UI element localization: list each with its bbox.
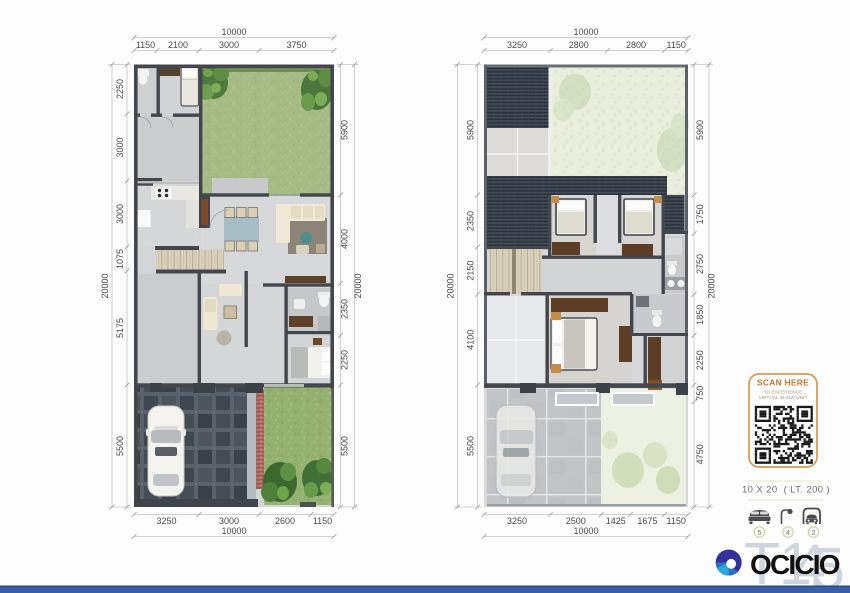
- svg-text:1150: 1150: [667, 40, 686, 50]
- svg-text:3000: 3000: [219, 40, 239, 50]
- svg-text:1850: 1850: [695, 305, 705, 325]
- svg-text:2250: 2250: [340, 350, 350, 370]
- svg-text:20000: 20000: [707, 273, 717, 298]
- svg-text:20000: 20000: [446, 273, 456, 298]
- svg-text:10000: 10000: [221, 27, 246, 37]
- svg-text:OCICIO: OCICIO: [750, 549, 840, 580]
- svg-text:2800: 2800: [569, 40, 589, 50]
- svg-text:2500: 2500: [566, 516, 586, 526]
- svg-text:3250: 3250: [507, 40, 527, 50]
- svg-text:3000: 3000: [115, 137, 125, 157]
- svg-text:3250: 3250: [156, 516, 176, 526]
- svg-text:2350: 2350: [340, 299, 350, 319]
- svg-text:10000: 10000: [573, 27, 598, 37]
- svg-text:4100: 4100: [466, 330, 476, 350]
- svg-text:2600: 2600: [275, 516, 295, 526]
- svg-text:1425: 1425: [606, 516, 626, 526]
- svg-text:2800: 2800: [626, 40, 646, 50]
- svg-text:1750: 1750: [695, 204, 705, 224]
- svg-text:10000: 10000: [573, 526, 598, 536]
- svg-text:5900: 5900: [466, 120, 476, 140]
- svg-text:5900: 5900: [340, 120, 350, 140]
- svg-text:SCAN HERE: SCAN HERE: [757, 378, 809, 388]
- svg-text:1675: 1675: [637, 516, 657, 526]
- svg-text:1150: 1150: [313, 516, 332, 526]
- svg-text:5500: 5500: [340, 436, 350, 456]
- svg-text:750: 750: [695, 386, 705, 401]
- svg-text:VIRTUAL SHOW UNIT: VIRTUAL SHOW UNIT: [759, 395, 808, 401]
- svg-text:20000: 20000: [100, 273, 110, 298]
- svg-text:5900: 5900: [695, 120, 705, 140]
- svg-text:10 X 20 ( LT. 200 ): 10 X 20 ( LT. 200 ): [742, 485, 830, 496]
- svg-text:10000: 10000: [221, 526, 246, 536]
- svg-text:4750: 4750: [695, 444, 705, 464]
- svg-text:20000: 20000: [353, 273, 363, 298]
- svg-text:1075: 1075: [115, 249, 125, 269]
- svg-text:2250: 2250: [115, 79, 125, 99]
- svg-text:2250: 2250: [695, 350, 705, 370]
- svg-text:5175: 5175: [115, 318, 125, 338]
- svg-text:2150: 2150: [466, 261, 476, 281]
- svg-text:5500: 5500: [115, 436, 125, 456]
- svg-text:1150: 1150: [136, 40, 155, 50]
- svg-text:2750: 2750: [695, 254, 705, 274]
- svg-text:3750: 3750: [286, 40, 306, 50]
- svg-text:3000: 3000: [219, 516, 239, 526]
- svg-text:3250: 3250: [507, 516, 527, 526]
- svg-text:1150: 1150: [667, 516, 686, 526]
- svg-text:2350: 2350: [466, 211, 476, 231]
- svg-text:4000: 4000: [340, 229, 350, 249]
- svg-text:TO EXPERIENCE: TO EXPERIENCE: [764, 390, 803, 396]
- svg-text:5500: 5500: [466, 436, 476, 456]
- svg-text:3000: 3000: [115, 204, 125, 224]
- svg-text:2100: 2100: [168, 40, 188, 50]
